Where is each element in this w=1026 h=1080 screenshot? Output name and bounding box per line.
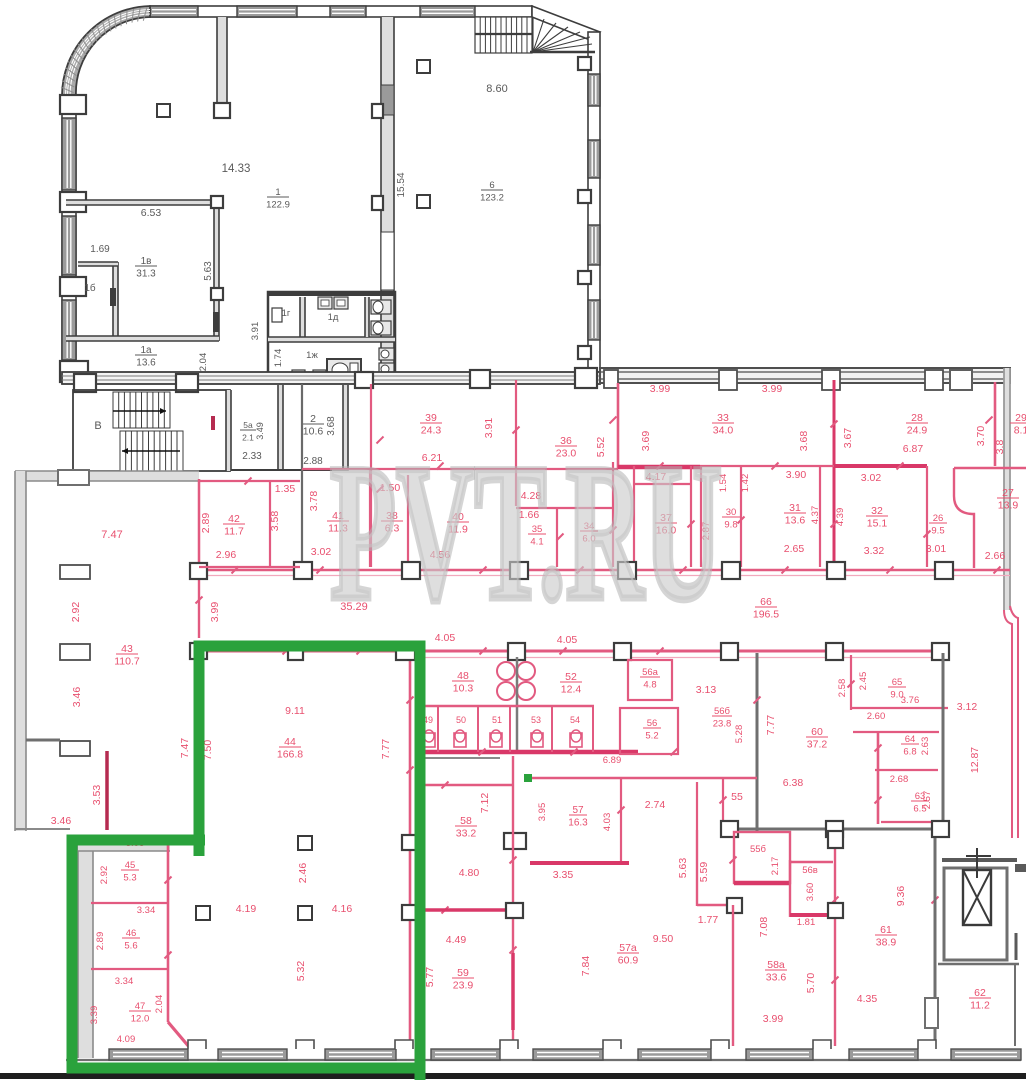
svg-text:2.60: 2.60 [867,711,886,722]
svg-text:5.59: 5.59 [698,862,710,883]
svg-text:3.34: 3.34 [115,976,134,987]
svg-text:52: 52 [565,671,577,683]
svg-text:2: 2 [310,413,316,425]
svg-text:1ж: 1ж [306,350,318,361]
svg-text:3.12: 3.12 [957,701,978,713]
svg-text:2.66: 2.66 [985,550,1006,562]
svg-text:23.9: 23.9 [453,980,474,992]
svg-text:2.45: 2.45 [858,672,869,691]
svg-text:1б: 1б [84,282,96,294]
svg-text:1г: 1г [282,308,291,319]
svg-text:7.77: 7.77 [765,715,777,736]
svg-text:1в: 1в [141,256,152,267]
svg-text:12.4: 12.4 [561,684,582,696]
svg-text:3.67: 3.67 [842,428,854,449]
svg-text:42: 42 [228,513,240,525]
svg-text:1a: 1a [140,345,152,356]
svg-text:5.3: 5.3 [123,873,136,884]
svg-text:4.35: 4.35 [857,993,878,1005]
svg-text:59: 59 [457,967,469,979]
svg-text:3.13: 3.13 [696,684,717,696]
svg-text:28: 28 [911,412,923,424]
svg-text:1.77: 1.77 [698,914,719,926]
svg-text:56а: 56а [642,667,659,678]
svg-text:2.65: 2.65 [784,543,805,555]
svg-text:1.74: 1.74 [273,349,284,368]
svg-text:6.8: 6.8 [903,747,916,758]
svg-text:3.02: 3.02 [311,546,332,558]
svg-text:2.46: 2.46 [297,863,309,884]
svg-text:3.78: 3.78 [308,491,320,512]
svg-text:56: 56 [647,718,658,729]
svg-text:62: 62 [974,987,986,999]
svg-text:4.8: 4.8 [643,680,656,691]
svg-text:9.36: 9.36 [895,886,907,907]
svg-text:3.53: 3.53 [91,785,103,806]
svg-text:66: 66 [760,596,772,608]
svg-text:5.28: 5.28 [734,725,745,744]
svg-text:5.6: 5.6 [124,941,137,952]
svg-text:7.84: 7.84 [580,956,592,977]
svg-text:9.11: 9.11 [285,705,305,717]
svg-text:60.9: 60.9 [618,955,639,967]
svg-text:4.19: 4.19 [236,903,257,915]
svg-text:10.3: 10.3 [453,683,474,695]
svg-text:2.04: 2.04 [154,995,165,1014]
svg-text:3.39: 3.39 [89,1006,100,1025]
svg-text:3.76: 3.76 [901,695,920,706]
svg-text:3.60: 3.60 [805,883,816,902]
svg-text:5.2: 5.2 [645,731,658,742]
svg-text:9.50: 9.50 [653,933,674,945]
svg-text:2.96: 2.96 [216,549,237,561]
svg-text:29: 29 [1015,412,1026,424]
svg-text:5.32: 5.32 [295,961,307,982]
svg-text:4.80: 4.80 [459,867,480,879]
svg-text:13.9: 13.9 [998,500,1019,512]
svg-text:58: 58 [460,815,472,827]
svg-text:2.1: 2.1 [242,433,254,443]
svg-text:15.54: 15.54 [396,172,407,197]
svg-text:3.02: 3.02 [861,472,882,484]
svg-text:56б: 56б [714,706,731,717]
svg-text:56в: 56в [802,865,818,876]
svg-text:12.0: 12.0 [131,1014,150,1025]
svg-text:7.08: 7.08 [758,917,770,938]
svg-text:1.42: 1.42 [740,474,751,493]
svg-text:4.39: 4.39 [835,508,846,527]
svg-text:57а: 57а [619,942,637,954]
svg-text:6.38: 6.38 [783,777,804,789]
svg-text:8.1: 8.1 [1014,425,1026,437]
svg-text:15.1: 15.1 [867,518,888,530]
svg-text:3.49: 3.49 [255,422,265,440]
svg-text:61: 61 [880,924,892,936]
svg-text:5.63: 5.63 [677,858,689,879]
svg-text:14.33: 14.33 [222,163,251,175]
svg-text:4.37: 4.37 [810,506,821,525]
svg-text:3.58: 3.58 [269,511,281,532]
svg-text:6.89: 6.89 [603,755,622,766]
svg-text:45: 45 [125,860,136,871]
svg-text:3.46: 3.46 [51,815,72,827]
svg-text:3.32: 3.32 [864,545,885,557]
svg-text:3.68: 3.68 [798,431,810,452]
svg-text:3.99: 3.99 [209,602,221,623]
svg-text:16.3: 16.3 [568,818,588,829]
svg-text:4.03: 4.03 [602,813,613,832]
svg-text:2.74: 2.74 [645,799,666,811]
svg-text:65: 65 [892,677,903,688]
svg-text:2.17: 2.17 [770,857,781,876]
svg-text:1.69: 1.69 [90,244,110,255]
svg-text:110.7: 110.7 [114,656,140,668]
svg-text:2.89: 2.89 [200,513,212,534]
svg-text:166.8: 166.8 [277,749,303,761]
svg-text:11.7: 11.7 [224,526,244,538]
svg-text:64: 64 [905,734,916,745]
svg-text:4.49: 4.49 [446,934,467,946]
svg-text:7.47: 7.47 [179,738,191,759]
svg-text:6.53: 6.53 [141,207,162,219]
svg-text:55: 55 [731,791,743,803]
svg-text:33.6: 33.6 [766,972,787,984]
svg-text:27: 27 [1002,487,1014,499]
svg-text:50: 50 [456,715,466,725]
svg-text:3.99: 3.99 [762,383,783,395]
svg-text:3.70: 3.70 [975,426,987,447]
svg-text:53: 53 [531,715,541,725]
svg-text:5а: 5а [243,420,253,430]
svg-text:1.81: 1.81 [797,917,816,928]
svg-text:48: 48 [457,670,469,682]
svg-text:32: 32 [871,505,883,517]
svg-text:3.35: 3.35 [553,869,574,881]
svg-text:24.9: 24.9 [907,425,928,437]
svg-text:43: 43 [121,643,133,655]
svg-text:3.99: 3.99 [763,1013,784,1025]
svg-text:8.60: 8.60 [486,83,507,95]
svg-text:2.04: 2.04 [198,353,209,372]
svg-text:57: 57 [572,805,584,816]
svg-text:47: 47 [135,1001,146,1012]
svg-text:23.8: 23.8 [713,719,732,730]
svg-text:5.77: 5.77 [424,967,436,988]
svg-text:26: 26 [933,513,944,524]
svg-text:12.87: 12.87 [969,747,981,773]
svg-text:5.63: 5.63 [203,261,214,281]
svg-text:44: 44 [284,736,296,748]
svg-text:13.6: 13.6 [785,515,806,527]
svg-text:55б: 55б [750,844,767,855]
svg-text:B: B [94,420,101,432]
svg-text:1: 1 [275,187,280,198]
svg-text:3.95: 3.95 [537,803,548,822]
svg-text:3.90: 3.90 [786,469,807,481]
svg-text:123.2: 123.2 [480,193,504,204]
svg-text:2.88: 2.88 [303,456,323,467]
svg-text:5.70: 5.70 [805,973,817,994]
svg-text:38.9: 38.9 [876,937,897,949]
svg-text:33.2: 33.2 [456,828,477,840]
svg-text:31.3: 31.3 [136,269,156,280]
svg-text:7.77: 7.77 [380,739,392,760]
svg-text:122.9: 122.9 [266,200,290,211]
svg-text:3.8: 3.8 [994,440,1006,455]
svg-text:9.8: 9.8 [724,520,737,531]
svg-text:2.58: 2.58 [837,679,848,698]
svg-text:39: 39 [425,412,437,424]
svg-text:4.09: 4.09 [117,1034,136,1045]
svg-text:7.47: 7.47 [101,529,122,541]
svg-text:2.89: 2.89 [95,932,106,951]
svg-text:6: 6 [489,180,494,191]
svg-text:10.6: 10.6 [303,426,324,438]
svg-text:4.16: 4.16 [332,903,353,915]
svg-text:37.2: 37.2 [807,739,828,751]
svg-text:60: 60 [811,726,823,738]
svg-text:51: 51 [492,715,502,725]
svg-text:196.5: 196.5 [753,609,779,621]
svg-text:2.57: 2.57 [922,791,933,810]
svg-text:2.33: 2.33 [242,451,262,462]
svg-text:2.63: 2.63 [920,737,931,756]
svg-text:1д: 1д [328,312,339,323]
svg-text:2.68: 2.68 [890,774,909,785]
svg-text:46: 46 [126,928,137,939]
svg-text:11.2: 11.2 [970,1000,990,1012]
svg-text:PVT.RU: PVT.RU [330,424,722,641]
svg-text:9.5: 9.5 [931,526,944,537]
svg-text:7.12: 7.12 [479,793,491,814]
svg-text:31: 31 [789,502,801,514]
svg-text:13.6: 13.6 [136,358,156,369]
svg-text:33: 33 [717,412,729,424]
svg-text:58а: 58а [767,959,785,971]
svg-text:3.99: 3.99 [650,383,671,395]
svg-text:2.92: 2.92 [70,602,82,623]
svg-text:2.92: 2.92 [99,866,110,885]
svg-text:3.46: 3.46 [71,687,83,708]
svg-text:6.87: 6.87 [903,443,924,455]
svg-text:54: 54 [570,715,580,725]
svg-text:3.34: 3.34 [137,905,156,916]
svg-text:3.01: 3.01 [926,543,947,555]
svg-text:3.91: 3.91 [250,322,261,341]
svg-text:30: 30 [726,507,737,518]
svg-text:1.35: 1.35 [275,483,296,495]
